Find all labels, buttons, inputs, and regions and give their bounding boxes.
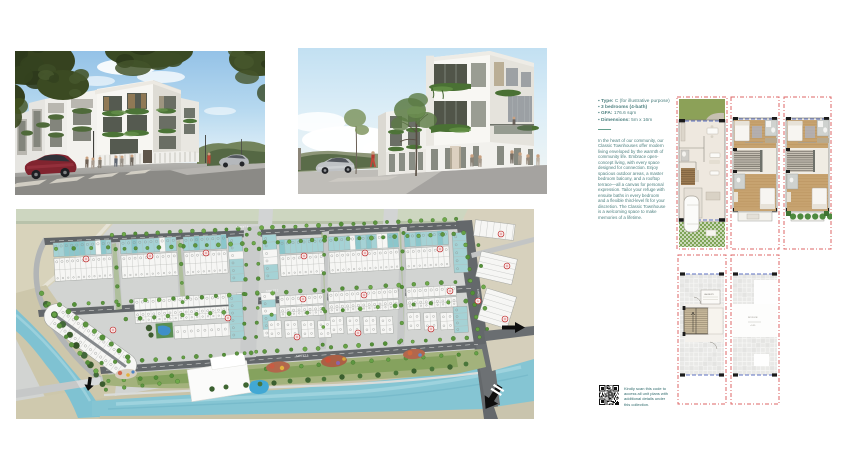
svg-text:+9.95: +9.95	[750, 325, 756, 327]
svg-text:STREET 3: STREET 3	[296, 353, 309, 358]
svg-text:STREET 4: STREET 4	[236, 224, 249, 229]
svg-text:LAUNDRY: LAUNDRY	[704, 293, 715, 296]
svg-text:RC ROOF: RC ROOF	[748, 317, 758, 319]
svg-text:STREET 2: STREET 2	[266, 288, 279, 293]
